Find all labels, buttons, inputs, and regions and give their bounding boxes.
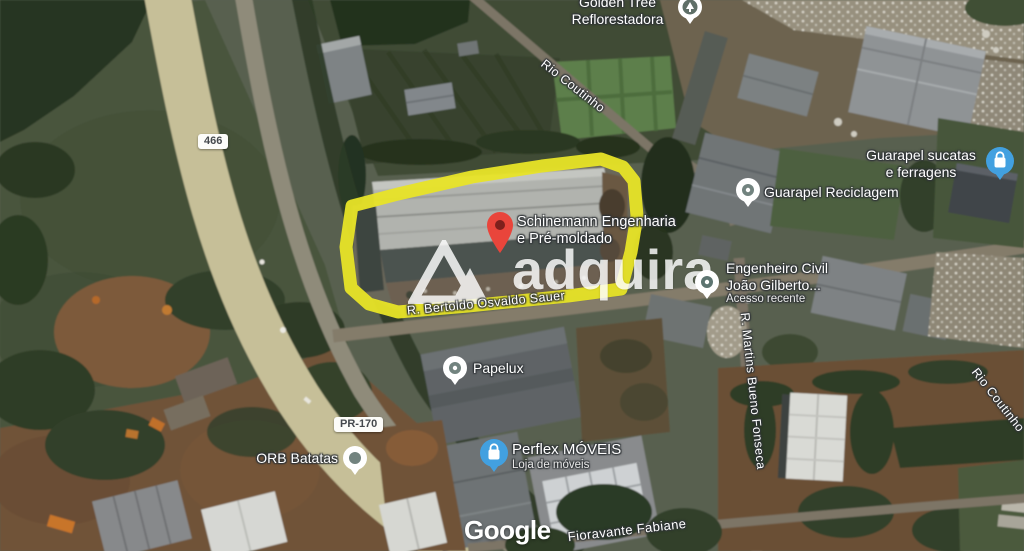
poi-label-guarapel-sucatas[interactable]: Guarapel sucatas e ferragens bbox=[860, 147, 982, 180]
guarapel-reciclagem-pin-icon[interactable] bbox=[735, 177, 761, 212]
poi-label-golden-tree[interactable]: Golden Tree Reflorestadora bbox=[540, 0, 695, 27]
poi-label-papelux[interactable]: Papelux bbox=[473, 360, 524, 377]
poi-label-perflex[interactable]: Perflex MÓVEIS Loja de móveis bbox=[512, 441, 621, 472]
engenheiro-pin-icon[interactable] bbox=[694, 269, 720, 304]
satellite-map-canvas[interactable]: adquira 466 PR-170 Rio Coutinho R. Berto… bbox=[0, 0, 1024, 551]
poi-label-schinemann[interactable]: Schinemann Engenharia e Pré-moldado bbox=[517, 214, 676, 248]
perflex-shopping-icon[interactable] bbox=[479, 438, 509, 479]
schinemann-red-pin-icon[interactable] bbox=[485, 211, 515, 260]
poi-label-engenheiro[interactable]: Engenheiro Civil João Gilberto... Acesso… bbox=[726, 260, 828, 307]
poi-label-guarapel-reciclagem[interactable]: Guarapel Reciclagem bbox=[764, 184, 899, 201]
papelux-pin-icon[interactable] bbox=[442, 355, 468, 390]
road-shield-pr170: PR-170 bbox=[334, 417, 383, 432]
google-logo[interactable]: Google bbox=[464, 515, 551, 546]
orb-batatas-pin-icon[interactable] bbox=[342, 445, 368, 480]
guarapel-sucatas-shopping-icon[interactable] bbox=[985, 146, 1015, 187]
road-shield-466: 466 bbox=[198, 134, 228, 149]
poi-label-orb-batatas[interactable]: ORB Batatas bbox=[240, 450, 338, 467]
